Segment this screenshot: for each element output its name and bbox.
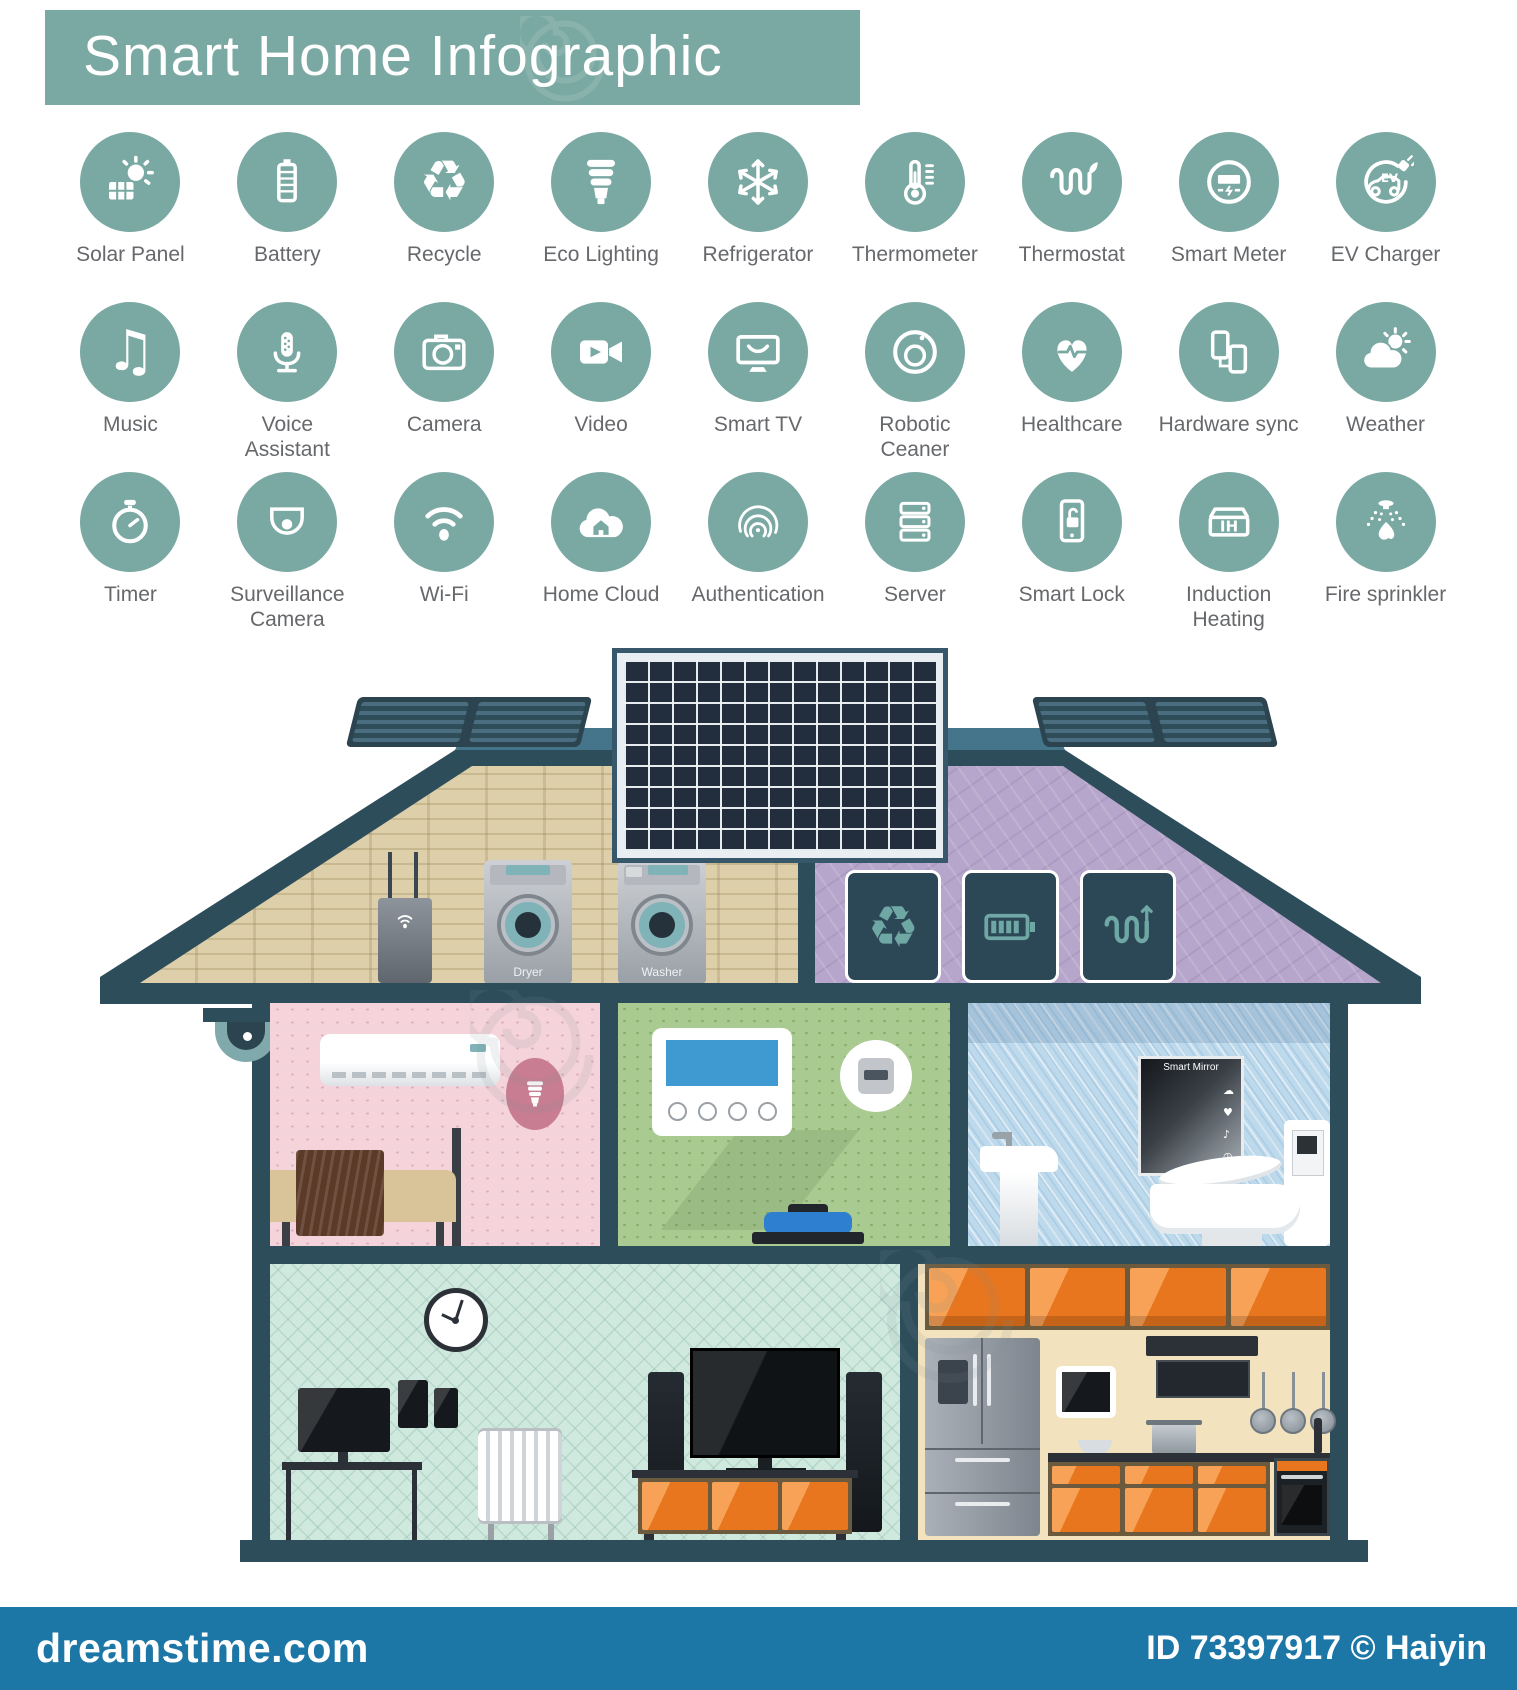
washer-label: Washer: [618, 965, 706, 979]
icon-cell: Surveillance Camera: [209, 472, 366, 642]
wifi-router-antenna: [388, 852, 392, 902]
roof-vent-right: [1032, 697, 1278, 747]
cabinet-door: [782, 1482, 848, 1530]
hanging-pan-handle: [1322, 1372, 1325, 1410]
icon-cell: Smart Lock: [993, 472, 1150, 642]
recycle-tile-icon: ♻: [845, 870, 941, 983]
ev-charger-icon: EV: [1336, 132, 1436, 232]
icon-cell: Voice Assistant: [209, 302, 366, 472]
icon-label: Recycle: [407, 243, 482, 268]
icon-label: Home Cloud: [543, 583, 660, 608]
cabinet-drawer: [1125, 1466, 1193, 1484]
hardware-sync-icon: [1179, 302, 1279, 402]
icon-cell: Smart Meter: [1150, 132, 1307, 302]
middle-floor: [252, 1246, 1348, 1264]
wall-tablet: [398, 1380, 428, 1428]
eco-lighting-icon: [551, 132, 651, 232]
green-bath-wall: [950, 1003, 968, 1246]
radiator: [478, 1428, 562, 1524]
fire-sprinkler-icon: [1336, 472, 1436, 572]
pepper-mill: [1314, 1418, 1322, 1454]
thermostat-screen: [666, 1040, 778, 1086]
icon-cell: IHInduction Heating: [1150, 472, 1307, 642]
smart-mirror-label: Smart Mirror: [1141, 1059, 1241, 1073]
cooking-pot: [1152, 1424, 1196, 1454]
bathroom-ceiling-shade: [968, 1003, 1330, 1043]
icon-label: Healthcare: [1021, 413, 1123, 438]
icon-label: Camera: [407, 413, 482, 438]
page-title: Smart Home Infographic: [45, 10, 860, 103]
vent-slats: [469, 702, 586, 742]
icon-label: Server: [884, 583, 946, 608]
icon-label: Smart Meter: [1171, 243, 1287, 268]
fridge-drawer-handle: [955, 1502, 1010, 1506]
dryer-door: [497, 894, 559, 956]
battery-h-tile-icon: [962, 870, 1058, 983]
icon-label: Smart TV: [714, 413, 802, 438]
smart-lock-icon: [1022, 472, 1122, 572]
bedroom-green-wall: [600, 1003, 618, 1246]
icon-label: Thermometer: [852, 243, 978, 268]
vent-slats: [1038, 702, 1155, 742]
icon-label: Thermostat: [1019, 243, 1125, 268]
upper-cabinet-door: [1130, 1268, 1226, 1326]
icon-cell: Healthcare: [993, 302, 1150, 472]
solar-panel-array: [612, 648, 948, 863]
icon-label: Weather: [1346, 413, 1425, 438]
icon-label: Surveillance Camera: [230, 583, 344, 633]
tablet-screen: [1062, 1372, 1110, 1412]
icon-grid: Solar PanelBattery♻RecycleEco LightingRe…: [52, 132, 1464, 642]
toilet-base: [1202, 1232, 1262, 1246]
footer-credit: ID 73397917 © Haiyin: [1146, 1629, 1487, 1668]
authentication-icon: [708, 472, 808, 572]
washer-screen: [648, 865, 688, 875]
range-hood: [1146, 1336, 1258, 1356]
icon-label: Smart Lock: [1019, 583, 1125, 608]
recycle-icon: ♻: [394, 132, 494, 232]
cabinet-door: [1125, 1488, 1193, 1532]
home-cloud-icon: [551, 472, 651, 572]
icon-label: Robotic Ceaner: [879, 413, 950, 463]
tv-screen: [690, 1348, 840, 1458]
cabinet-drawer: [1052, 1466, 1120, 1484]
kitchen-wall-tablet: [1056, 1366, 1116, 1418]
dryer: Dryer: [484, 860, 572, 983]
cloud-icon: ☁: [1223, 1085, 1234, 1096]
note-icon: ♪: [1223, 1129, 1234, 1140]
thermostat-panel: [652, 1028, 792, 1136]
watermark-swirl: [470, 990, 600, 1120]
energy-panels: ♻: [845, 870, 1176, 983]
washer-dispenser: [626, 867, 642, 877]
wall-clock: [424, 1288, 488, 1352]
vent-slats: [352, 702, 469, 742]
music-icon: ♫: [80, 302, 180, 402]
wifi-router: [378, 898, 432, 983]
meter-slot: [864, 1070, 888, 1080]
voice-assistant-icon: [237, 302, 337, 402]
watermark-swirl: [880, 1250, 1020, 1390]
right-exterior-wall: [1330, 1003, 1348, 1560]
microwave: [1156, 1360, 1250, 1398]
icon-cell: Thermostat: [993, 132, 1150, 302]
surveillance-camera-icon: [237, 472, 337, 572]
icon-cell: Server: [836, 472, 993, 642]
watermark-swirl: [520, 16, 610, 106]
video-icon: [551, 302, 651, 402]
upper-cabinet-door: [1030, 1268, 1126, 1326]
thermostat-icon: [1022, 132, 1122, 232]
icon-label: Wi-Fi: [420, 583, 469, 608]
thermostat-button: [758, 1102, 777, 1121]
robotic-cleaner-icon: [865, 302, 965, 402]
smart-tv-icon: [708, 302, 808, 402]
icon-cell: ♫Music: [52, 302, 209, 472]
toilet-bowl: [1150, 1184, 1300, 1234]
house-base: [240, 1540, 1368, 1562]
toilet-control-screen: [1297, 1136, 1317, 1154]
icon-label: Battery: [254, 243, 321, 268]
icon-label: Authentication: [691, 583, 824, 608]
vacuum-body: [764, 1212, 852, 1234]
fridge-drawer-handle: [955, 1458, 1010, 1462]
icon-cell: Timer: [52, 472, 209, 642]
bed-leg: [282, 1222, 290, 1246]
icon-cell: Wi-Fi: [366, 472, 523, 642]
desk-leg: [286, 1470, 291, 1540]
icon-label: Fire sprinkler: [1325, 583, 1446, 608]
lower-cabinet-unit: [1198, 1466, 1266, 1532]
tv-cabinet-top: [632, 1470, 858, 1478]
robot-vacuum: [752, 1204, 864, 1246]
fridge-drawer-line: [925, 1492, 1040, 1494]
footer-bar: dreamstime.com ID 73397917 © Haiyin: [0, 1607, 1517, 1690]
icon-cell: Smart TV: [680, 302, 837, 472]
header-banner: Smart Home Infographic: [45, 10, 860, 105]
cabinet-door: [712, 1482, 778, 1530]
oven-control-strip: [1277, 1461, 1327, 1471]
solar-cells: [624, 660, 936, 851]
desktop-monitor: [298, 1388, 390, 1452]
desk-leg: [412, 1470, 417, 1540]
tv-cabinet: [638, 1478, 852, 1534]
vent-slats: [1155, 702, 1272, 742]
icon-label: Hardware sync: [1159, 413, 1299, 438]
icon-cell: ♻Recycle: [366, 132, 523, 302]
hanging-pan: [1250, 1408, 1276, 1434]
icon-label: Solar Panel: [76, 243, 185, 268]
thermostat-button: [728, 1102, 747, 1121]
wall-tablet: [434, 1388, 458, 1428]
sink-basin: [980, 1146, 1058, 1172]
washer-door: [631, 894, 693, 956]
icon-label: Music: [103, 413, 158, 438]
cabinet-door: [1198, 1488, 1266, 1532]
footer-brand: dreamstime.com: [36, 1625, 369, 1672]
icon-cell: Thermometer: [836, 132, 993, 302]
lower-cabinets: [1048, 1462, 1270, 1536]
icon-cell: Refrigerator: [680, 132, 837, 302]
thermostat-button: [698, 1102, 717, 1121]
icon-cell: Fire sprinkler: [1307, 472, 1464, 642]
svg-text:EV: EV: [1381, 171, 1398, 185]
server-icon: [865, 472, 965, 572]
radiator-foot: [488, 1524, 494, 1540]
lower-cabinet-unit: [1052, 1466, 1120, 1532]
wifi-icon: [394, 472, 494, 572]
pot-lid: [1146, 1420, 1202, 1425]
attic-floor: [100, 983, 1420, 1003]
icon-cell: Solar Panel: [52, 132, 209, 302]
solar-panel-icon: [80, 132, 180, 232]
healthcare-icon: [1022, 302, 1122, 402]
fridge-drawer-line: [925, 1448, 1040, 1450]
bed-leg: [436, 1222, 444, 1246]
icon-cell: Home Cloud: [523, 472, 680, 642]
bed-blanket: [296, 1150, 384, 1236]
svg-text:IH: IH: [1219, 517, 1237, 535]
clock-center: [452, 1317, 459, 1324]
oven-glass: [1282, 1485, 1322, 1525]
washer: Washer: [618, 860, 706, 983]
induction-heating-icon: IH: [1179, 472, 1279, 572]
radiator-foot: [548, 1524, 554, 1540]
vacuum-base: [752, 1232, 864, 1244]
mirror-widget-icons: ☁♥♪◷: [1223, 1085, 1234, 1162]
oven: [1274, 1458, 1330, 1536]
monitor-stand: [338, 1452, 348, 1462]
heart-icon: ♥: [1223, 1107, 1234, 1118]
icon-label: Induction Heating: [1186, 583, 1271, 633]
icon-cell: Robotic Ceaner: [836, 302, 993, 472]
icon-cell: Hardware sync: [1150, 302, 1307, 472]
icon-label: Timer: [104, 583, 157, 608]
icon-label: Eco Lighting: [543, 243, 659, 268]
roof-vent-left: [346, 697, 592, 747]
icon-cell: EVEV Charger: [1307, 132, 1464, 302]
cabinet-door: [1052, 1488, 1120, 1532]
cabinet-door: [642, 1482, 708, 1530]
thermostat-button: [668, 1102, 687, 1121]
hanging-pan-handle: [1292, 1372, 1295, 1410]
icon-label: Refrigerator: [703, 243, 814, 268]
upper-cabinet-door: [1231, 1268, 1327, 1326]
icon-label: Video: [574, 413, 627, 438]
icon-cell: Eco Lighting: [523, 132, 680, 302]
dryer-label: Dryer: [484, 965, 572, 979]
hanging-pan: [1280, 1408, 1306, 1434]
battery-icon: [237, 132, 337, 232]
infographic-canvas: Smart Home Infographic Solar PanelBatter…: [0, 0, 1517, 1690]
timer-icon: [80, 472, 180, 572]
lower-cabinet-unit: [1125, 1466, 1193, 1532]
wifi-router-antenna: [414, 852, 418, 902]
thermometer-icon: [865, 132, 965, 232]
heating-coil-tile-icon: [1080, 870, 1176, 983]
weather-icon: [1336, 302, 1436, 402]
desk: [282, 1462, 422, 1470]
camera-icon: [394, 302, 494, 402]
toilet-control-panel: [1292, 1130, 1324, 1176]
icon-cell: Authentication: [680, 472, 837, 642]
cabinet-drawer: [1198, 1466, 1266, 1484]
ac-vent: [332, 1072, 488, 1078]
icon-cell: Video: [523, 302, 680, 472]
dryer-screen: [506, 865, 550, 875]
icon-cell: Battery: [209, 132, 366, 302]
hanging-pan-handle: [1262, 1372, 1265, 1410]
dome-lens-dot: [243, 1032, 252, 1041]
oven-handle: [1281, 1475, 1323, 1479]
icon-cell: Weather: [1307, 302, 1464, 472]
smart-meter-device: [840, 1040, 912, 1112]
left-exterior-wall: [252, 1003, 270, 1560]
smart-meter-icon: [1179, 132, 1279, 232]
refrigerator-icon: [708, 132, 808, 232]
icon-label: Voice Assistant: [245, 413, 330, 463]
icon-cell: Camera: [366, 302, 523, 472]
icon-label: EV Charger: [1331, 243, 1441, 268]
sink-pedestal: [1000, 1172, 1038, 1246]
